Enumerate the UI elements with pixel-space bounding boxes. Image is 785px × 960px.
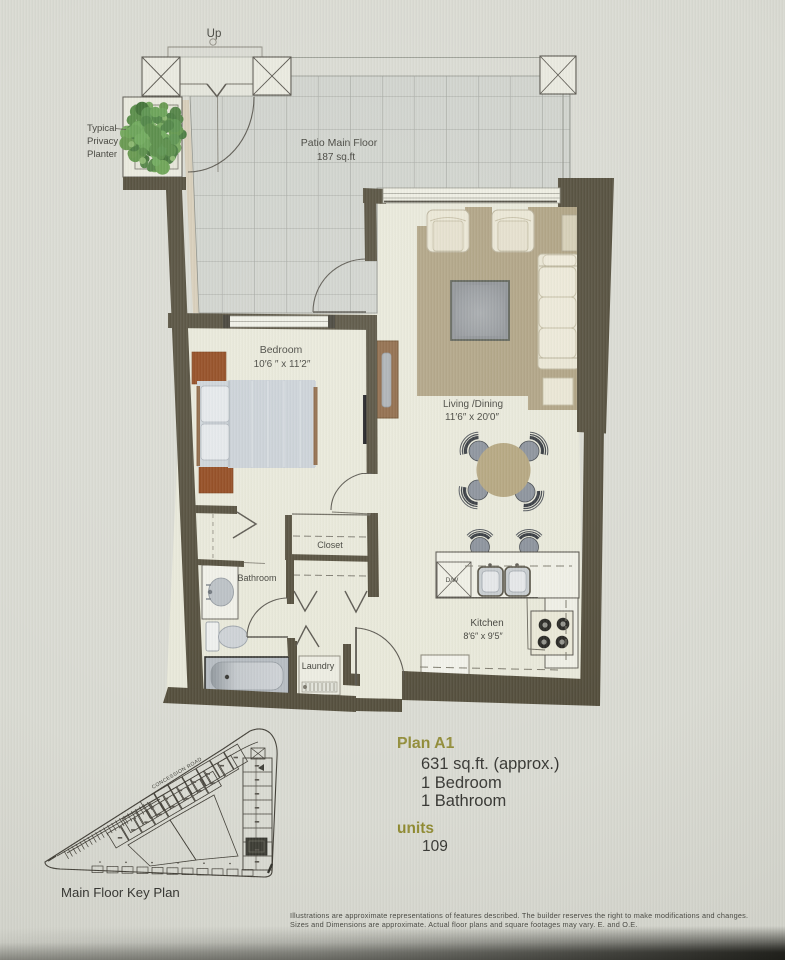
svg-text:109: 109 [422,838,448,855]
svg-text:631 sq.ft. (approx.): 631 sq.ft. (approx.) [421,755,560,773]
svg-text:10′6 ″ x 11′2″: 10′6 ″ x 11′2″ [254,359,311,370]
svg-text:1 Bedroom: 1 Bedroom [421,774,502,792]
svg-text:Plan A1: Plan A1 [397,735,455,752]
svg-text:Typical: Typical [87,123,117,134]
svg-text:11′6″ x 20′0″: 11′6″ x 20′0″ [445,412,499,423]
svg-text:CONCESSION ROAD: CONCESSION ROAD [151,756,203,790]
svg-text:1 Bathroom: 1 Bathroom [421,792,506,810]
svg-text:187 sq.ft: 187 sq.ft [317,152,356,163]
svg-text:Privacy: Privacy [87,136,118,147]
svg-text:units: units [397,820,434,837]
svg-text:Up: Up [207,28,222,40]
svg-text:Living /Dining: Living /Dining [443,399,503,410]
svg-text:Bathroom: Bathroom [237,573,276,583]
svg-text:Planter: Planter [87,149,117,160]
svg-text:Kitchen: Kitchen [470,618,503,629]
svg-text:Main Floor Key Plan: Main Floor Key Plan [61,885,180,900]
svg-text:Bedroom: Bedroom [260,344,303,356]
svg-text:Illustrations are approximate: Illustrations are approximate representa… [290,911,748,920]
svg-text:Closet: Closet [317,540,343,550]
svg-text:Laundry: Laundry [302,661,335,671]
svg-text:D/W: D/W [446,577,460,584]
svg-text:8′6″ x 9′5″: 8′6″ x 9′5″ [463,631,503,641]
svg-text:Patio Main Floor: Patio Main Floor [301,137,378,149]
